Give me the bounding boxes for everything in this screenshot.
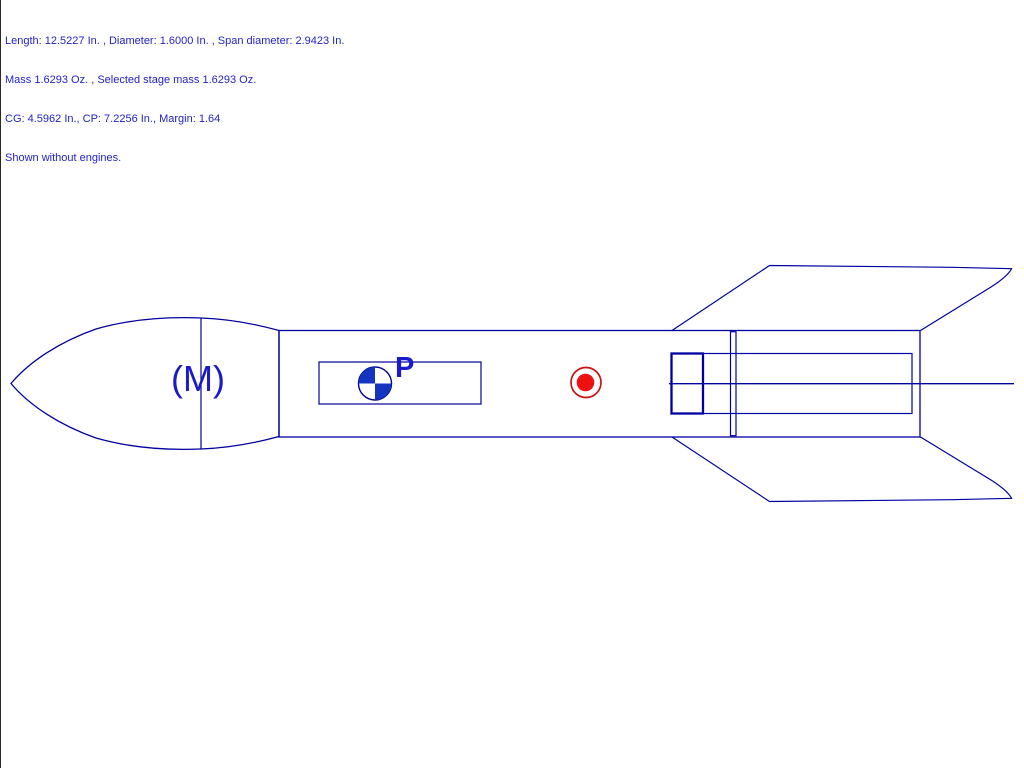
nose-cone-outline[interactable] [11, 318, 279, 450]
design-window: Length: 12.5227 In. , Diameter: 1.6000 I… [0, 0, 1024, 768]
cg-pod-label: P [395, 352, 414, 384]
cp-symbol[interactable] [571, 368, 601, 398]
nose-mass-label: (M) [171, 358, 225, 399]
cg-symbol-quadrant-upper-left [359, 367, 376, 384]
fin-top[interactable] [672, 266, 1012, 331]
cp-symbol-dot [577, 374, 595, 392]
rocket-design-canvas[interactable]: (M) P [1, 0, 1024, 768]
cg-symbol[interactable] [359, 367, 392, 400]
cg-symbol-quadrant-lower-right [375, 384, 392, 401]
fin-bottom[interactable] [672, 437, 1012, 502]
